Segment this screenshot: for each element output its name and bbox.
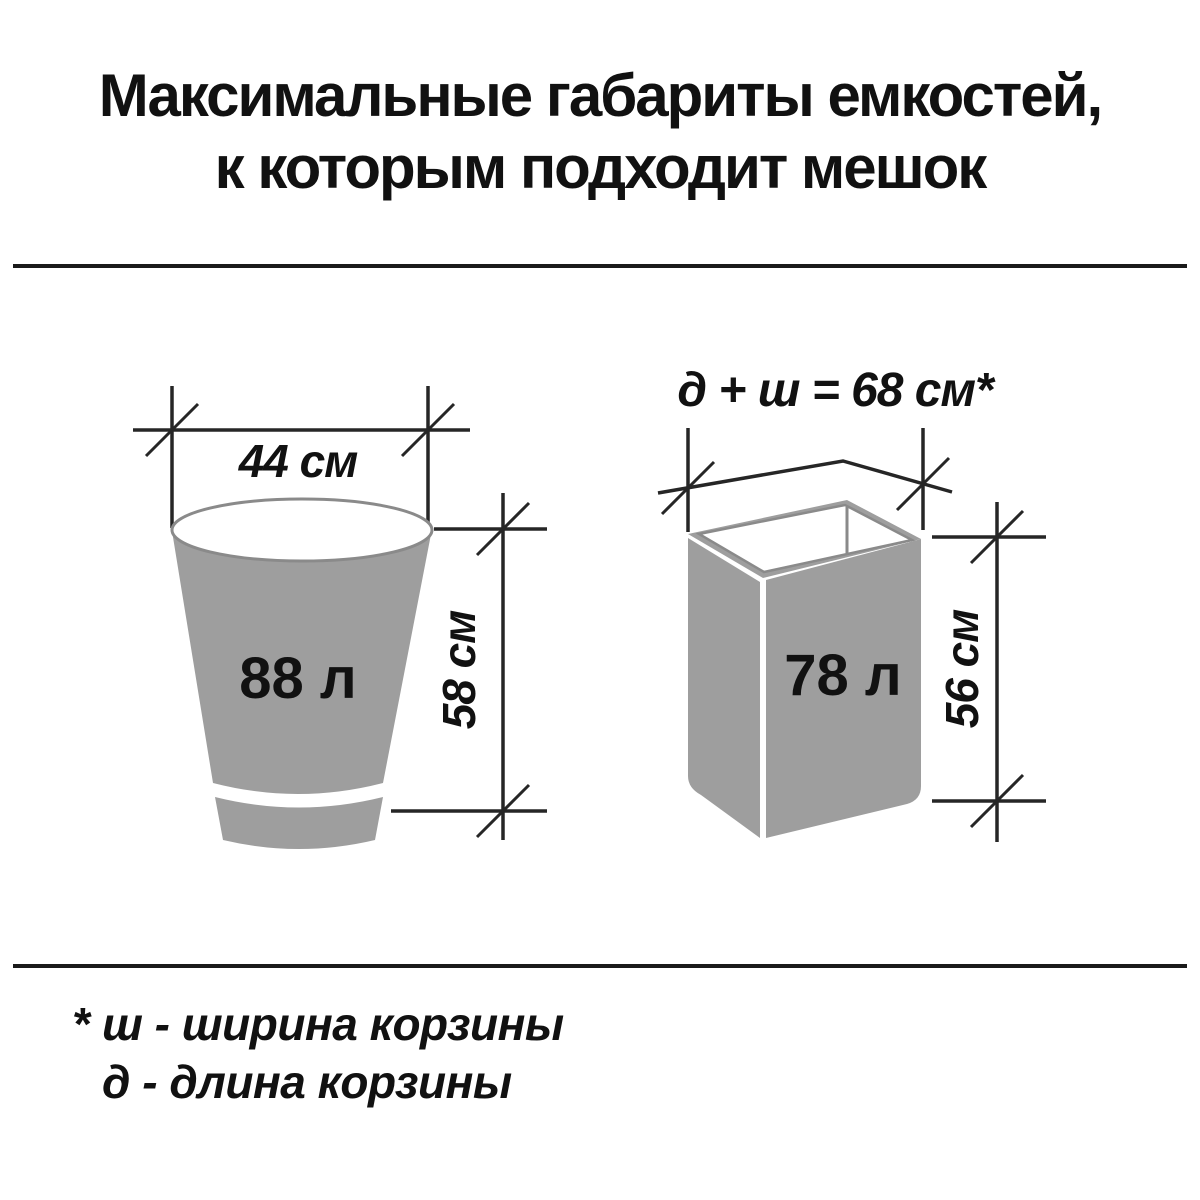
footnote-width-definition: ш - ширина корзины	[102, 995, 564, 1053]
bucket-shape: 88 л	[172, 499, 432, 849]
basket-height-dimension: 56 см	[932, 502, 1046, 842]
footnote-line-width: * ш - ширина корзины	[72, 995, 564, 1053]
basket-left-face	[688, 538, 760, 838]
infographic-page: Максимальные габариты емкостей, к которы…	[0, 0, 1200, 1200]
basket-volume-label: 78 л	[784, 643, 901, 708]
dimension-line-bent	[658, 461, 952, 493]
basket-shape: 78 л	[688, 500, 921, 838]
footnote-length-definition: д - длина корзины	[102, 1053, 512, 1111]
bucket-height-label: 58 см	[433, 610, 485, 730]
round-bucket-diagram: 44 см 88 л 58 см	[133, 386, 547, 849]
footnote-line-length: д - длина корзины	[72, 1053, 564, 1111]
bucket-width-label: 44 см	[238, 435, 359, 487]
bucket-volume-label: 88 л	[239, 646, 356, 711]
footnote-asterisk: *	[72, 995, 102, 1053]
bottom-divider	[13, 964, 1187, 968]
bucket-rim-opening	[172, 499, 432, 561]
footnote: * ш - ширина корзины д - длина корзины	[72, 995, 564, 1111]
rect-basket-diagram: д + ш = 68 см* 78 л	[658, 364, 1046, 842]
basket-height-label: 56 см	[936, 609, 988, 729]
basket-perimeter-label: д + ш = 68 см*	[677, 364, 996, 417]
bucket-base	[215, 797, 383, 849]
